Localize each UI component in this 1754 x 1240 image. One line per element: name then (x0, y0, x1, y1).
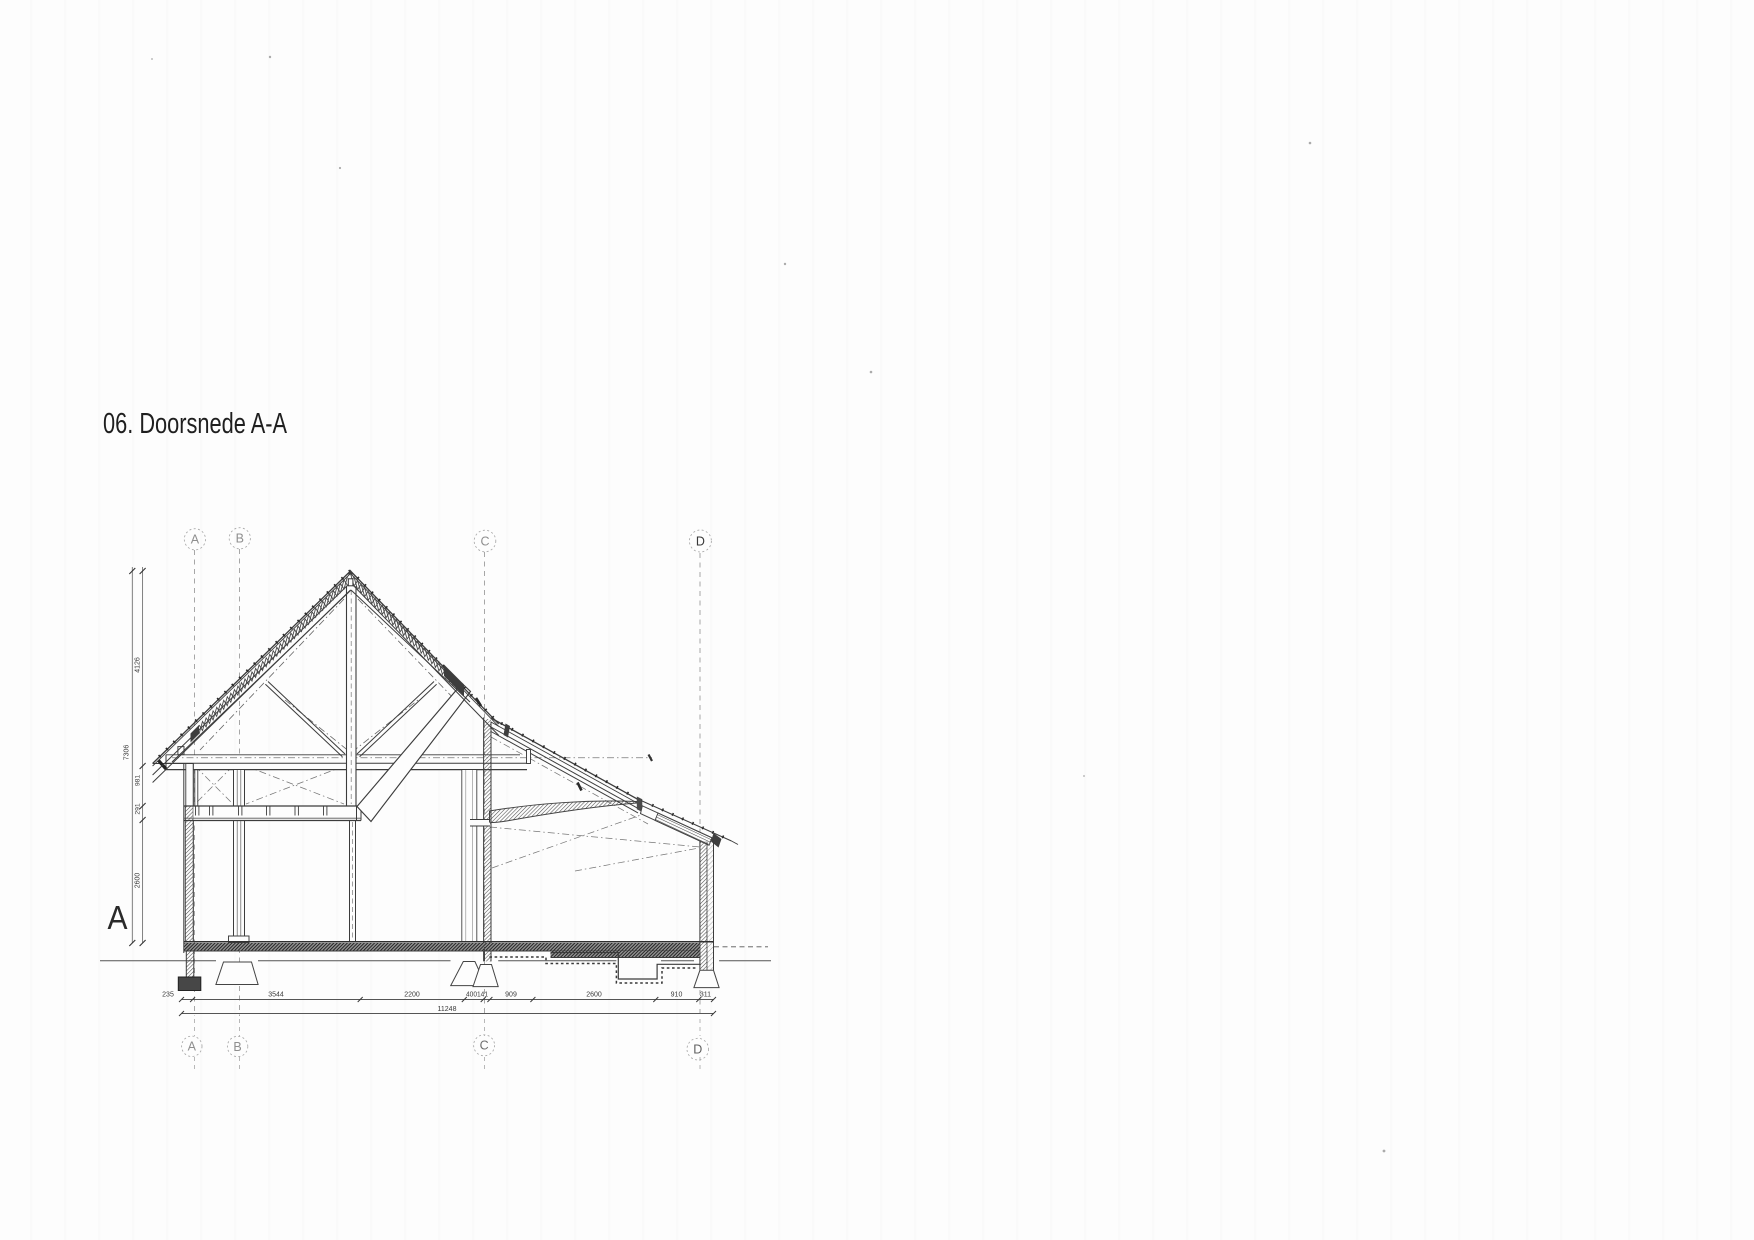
svg-text:D: D (693, 1043, 702, 1057)
svg-text:3544: 3544 (268, 992, 284, 999)
svg-text:C: C (480, 534, 489, 548)
svg-text:311: 311 (700, 992, 711, 999)
svg-text:235: 235 (162, 992, 174, 999)
svg-text:2600: 2600 (586, 992, 602, 999)
svg-text:2200: 2200 (404, 992, 420, 999)
svg-text:A: A (188, 1040, 197, 1054)
svg-text:909: 909 (505, 992, 517, 999)
svg-text:C: C (480, 1039, 489, 1053)
svg-text:291: 291 (134, 803, 141, 815)
svg-text:06. Doorsnede A-A: 06. Doorsnede A-A (103, 408, 287, 440)
svg-text:B: B (236, 532, 244, 546)
svg-text:A: A (191, 533, 200, 547)
svg-text:D: D (696, 534, 705, 548)
svg-text:400141: 400141 (466, 992, 488, 999)
svg-text:2600: 2600 (134, 873, 141, 889)
svg-text:910: 910 (671, 992, 683, 999)
svg-text:7306: 7306 (124, 745, 131, 761)
svg-text:B: B (233, 1040, 241, 1054)
svg-text:11248: 11248 (438, 1006, 457, 1013)
svg-text:981: 981 (134, 775, 141, 787)
svg-text:4126: 4126 (134, 657, 141, 673)
svg-text:A: A (108, 899, 128, 936)
